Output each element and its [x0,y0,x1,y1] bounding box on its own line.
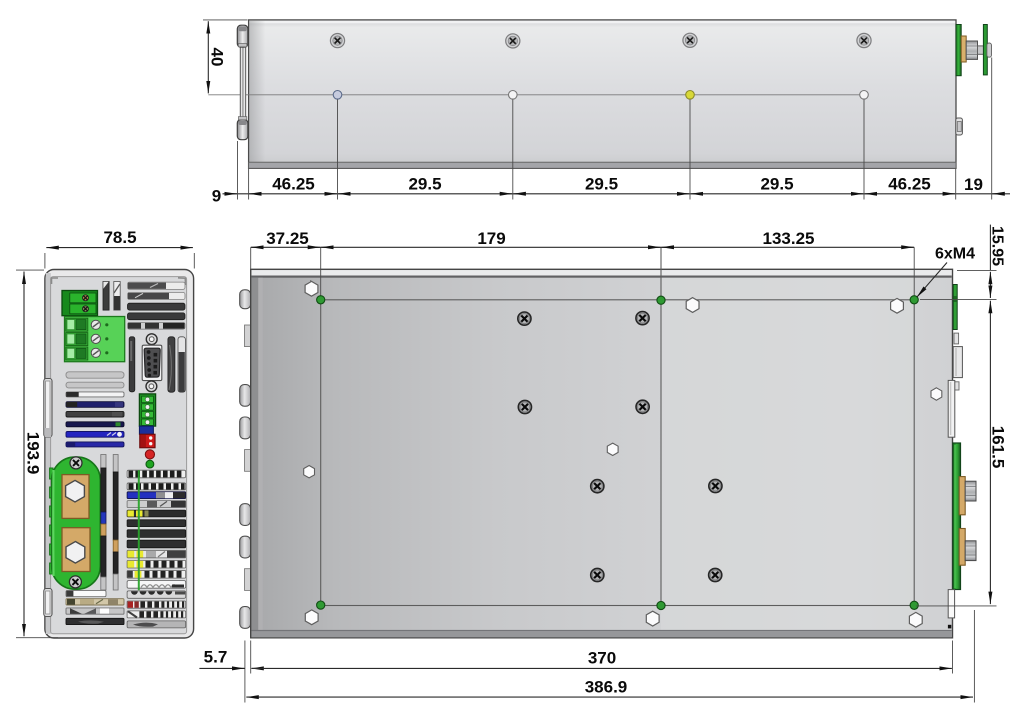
svg-text:29.5: 29.5 [408,174,441,193]
svg-text:29.5: 29.5 [760,174,793,193]
svg-text:193.9: 193.9 [24,432,43,475]
svg-text:46.25: 46.25 [888,174,931,193]
svg-text:179: 179 [477,229,505,248]
svg-text:46.25: 46.25 [272,174,315,193]
svg-text:133.25: 133.25 [763,229,815,248]
svg-text:29.5: 29.5 [585,174,618,193]
svg-text:40: 40 [208,48,227,67]
svg-text:19: 19 [964,175,983,194]
svg-text:386.9: 386.9 [585,677,628,696]
svg-text:15.95: 15.95 [989,226,1006,266]
svg-text:37.25: 37.25 [266,229,309,248]
svg-text:78.5: 78.5 [103,228,136,247]
svg-text:161.5: 161.5 [989,426,1008,469]
svg-text:5.7: 5.7 [204,647,228,666]
svg-text:6xM4: 6xM4 [935,246,975,263]
svg-text:9: 9 [212,187,221,206]
svg-text:370: 370 [588,649,616,668]
